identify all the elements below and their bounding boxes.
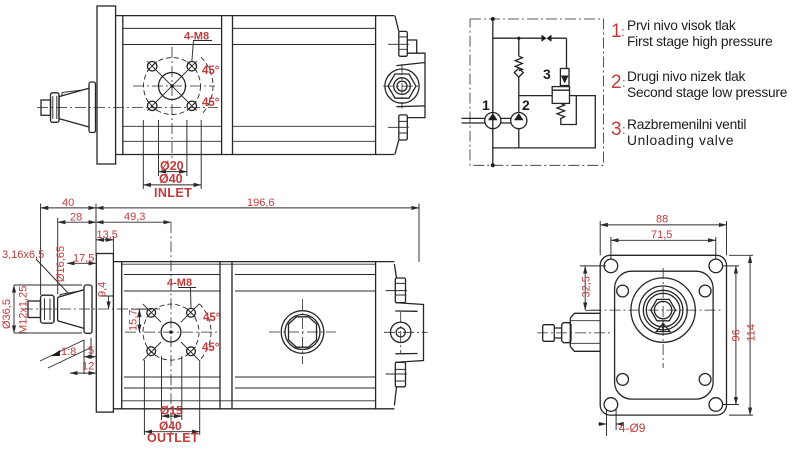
svg-text:32,5: 32,5 <box>581 276 593 297</box>
svg-text:45°: 45° <box>202 97 220 109</box>
svg-text:3: 3 <box>611 119 621 140</box>
svg-text:28: 28 <box>70 212 82 224</box>
svg-text:Ø36,5: Ø36,5 <box>1 299 13 329</box>
svg-text:9,4: 9,4 <box>97 282 109 297</box>
svg-text:88: 88 <box>656 214 668 226</box>
svg-text:13,5: 13,5 <box>97 229 118 241</box>
svg-text::: : <box>621 24 624 39</box>
svg-text:Prvi nivo visok tlak: Prvi nivo visok tlak <box>627 18 736 33</box>
svg-text:1:8: 1:8 <box>61 346 76 358</box>
svg-text:First stage high pressure: First stage high pressure <box>627 34 773 49</box>
svg-text:Ø40: Ø40 <box>159 172 183 186</box>
svg-text:3,16x6,5: 3,16x6,5 <box>2 249 44 261</box>
svg-text:2: 2 <box>611 72 621 93</box>
svg-text::: : <box>622 75 625 90</box>
svg-text:17,5: 17,5 <box>73 253 94 265</box>
svg-text:40: 40 <box>62 197 74 209</box>
svg-text:3: 3 <box>543 66 551 82</box>
svg-text:OUTLET: OUTLET <box>147 431 199 445</box>
svg-text:12: 12 <box>82 361 94 373</box>
svg-text:45°: 45° <box>202 65 220 77</box>
svg-text:71,5: 71,5 <box>651 229 672 241</box>
svg-text:Unloading valve: Unloading valve <box>627 133 734 148</box>
svg-text:114: 114 <box>746 324 758 342</box>
svg-text:1: 1 <box>611 21 621 42</box>
svg-text:Ø15: Ø15 <box>160 404 183 418</box>
svg-text:INLET: INLET <box>154 186 192 200</box>
svg-text:45°: 45° <box>203 312 221 324</box>
svg-text:1: 1 <box>482 97 490 113</box>
svg-text:Drugi nivo nizek tlak: Drugi nivo nizek tlak <box>627 69 746 84</box>
svg-text:5: 5 <box>88 345 94 357</box>
svg-text::: : <box>622 122 625 137</box>
svg-text:Second stage low pressure: Second stage low pressure <box>627 85 788 100</box>
svg-text:Ø20: Ø20 <box>160 159 184 173</box>
svg-text:4-Ø9: 4-Ø9 <box>619 421 646 435</box>
svg-text:15,7: 15,7 <box>128 310 140 331</box>
svg-text:196,6: 196,6 <box>247 197 275 209</box>
svg-text:49,3: 49,3 <box>124 211 145 223</box>
svg-text:M12x1,25: M12x1,25 <box>18 286 30 334</box>
svg-text:96: 96 <box>731 329 743 341</box>
svg-text:45°: 45° <box>202 342 220 354</box>
svg-text:Razbremenilni ventil: Razbremenilni ventil <box>627 117 746 132</box>
svg-text:Ø16,65: Ø16,65 <box>55 246 67 282</box>
svg-text:2: 2 <box>522 97 530 113</box>
